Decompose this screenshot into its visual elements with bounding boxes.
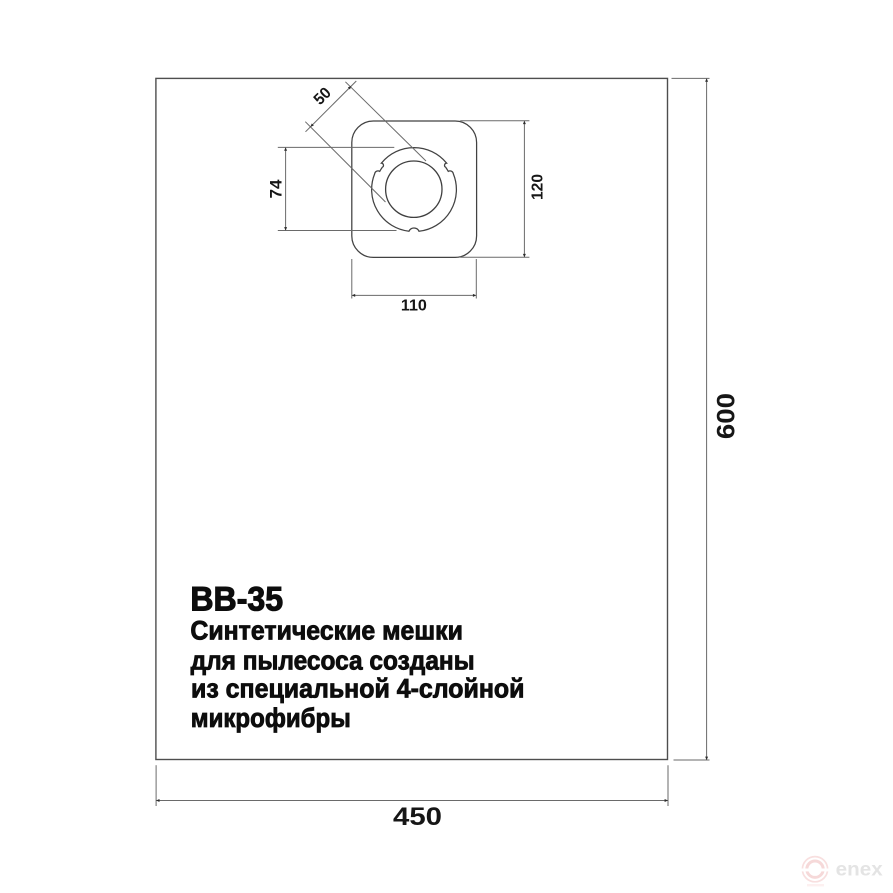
svg-text:из специальной 4-слойной: из специальной 4-слойной	[191, 674, 525, 704]
svg-text:BB-35: BB-35	[190, 581, 283, 619]
svg-text:110: 110	[401, 298, 427, 315]
svg-text:50: 50	[311, 85, 335, 109]
svg-text:enex: enex	[836, 859, 883, 880]
svg-text:микрофибры: микрофибры	[191, 703, 351, 733]
svg-text:120: 120	[530, 174, 547, 200]
svg-text:600: 600	[713, 393, 741, 439]
svg-text:74: 74	[267, 179, 286, 199]
svg-text:450: 450	[393, 803, 442, 831]
svg-text:Синтетические мешки: Синтетические мешки	[190, 616, 463, 646]
svg-text:для пылесоса созданы: для пылесоса созданы	[191, 646, 475, 676]
